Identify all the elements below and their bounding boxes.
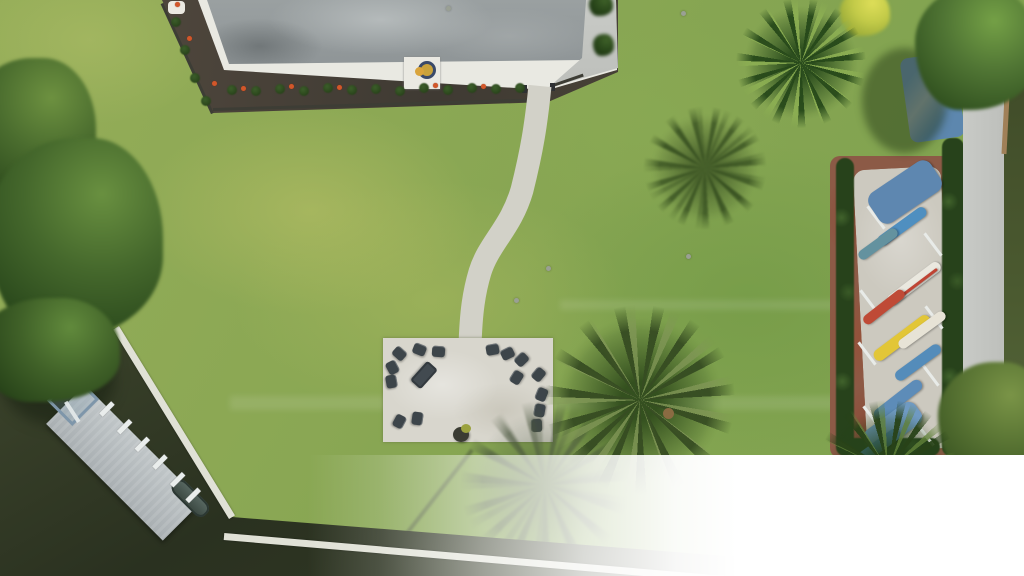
caption-band: Casa Mareo Part of the SK COLLECTION by …	[0, 455, 1024, 576]
sprinkler-head	[546, 266, 551, 271]
sprinkler-head	[446, 6, 451, 11]
sprinkler-head	[681, 11, 686, 16]
sprinkler-head	[514, 298, 519, 303]
property-photo-card: Casa Mareo Part of the SK COLLECTION by …	[0, 0, 1024, 576]
sprinkler-head	[686, 254, 691, 259]
